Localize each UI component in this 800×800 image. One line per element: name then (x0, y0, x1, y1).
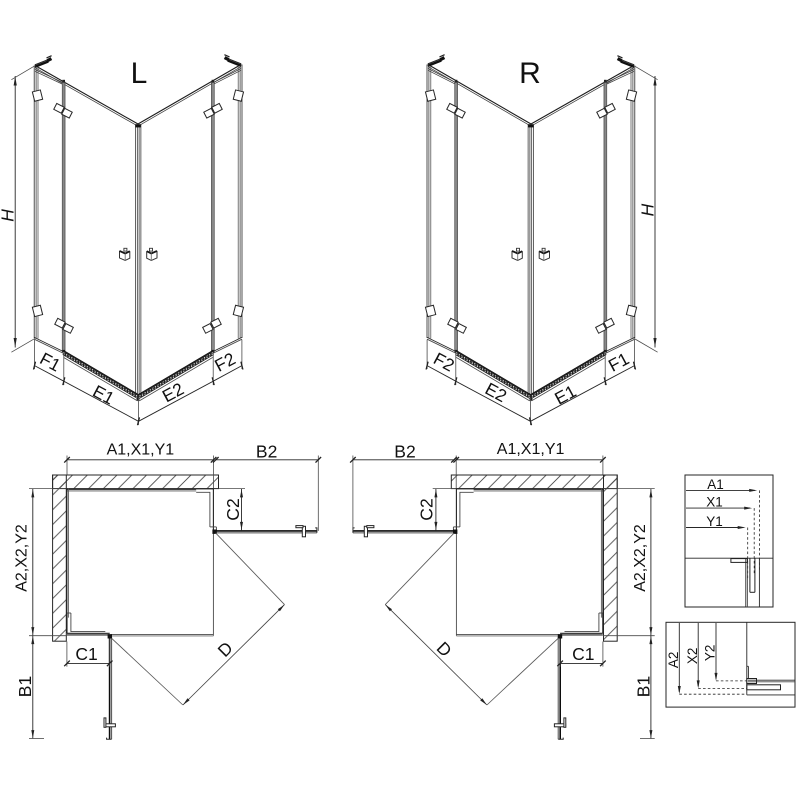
svg-text:A2,X2,Y2: A2,X2,Y2 (14, 524, 31, 592)
svg-text:X1: X1 (706, 495, 723, 510)
svg-text:X2: X2 (685, 648, 700, 665)
svg-text:B1: B1 (15, 676, 35, 697)
svg-text:C2: C2 (223, 498, 243, 520)
svg-text:L: L (131, 57, 148, 90)
svg-text:A1,X1,Y1: A1,X1,Y1 (107, 441, 175, 458)
svg-text:A2: A2 (666, 652, 681, 669)
svg-text:A1: A1 (707, 477, 724, 492)
svg-text:C2: C2 (416, 498, 436, 520)
svg-text:C1: C1 (75, 644, 97, 664)
svg-text:B2: B2 (394, 442, 415, 462)
svg-text:A2,X2,Y2: A2,X2,Y2 (632, 524, 649, 592)
svg-text:A1,X1,Y1: A1,X1,Y1 (497, 441, 565, 458)
svg-text:R: R (519, 57, 541, 90)
svg-text:H: H (637, 203, 657, 216)
svg-text:C1: C1 (572, 644, 594, 664)
svg-text:Y1: Y1 (706, 514, 723, 529)
svg-text:Y2: Y2 (703, 645, 718, 662)
svg-text:B1: B1 (634, 676, 654, 697)
svg-text:H: H (0, 209, 18, 222)
svg-text:B2: B2 (256, 442, 277, 462)
